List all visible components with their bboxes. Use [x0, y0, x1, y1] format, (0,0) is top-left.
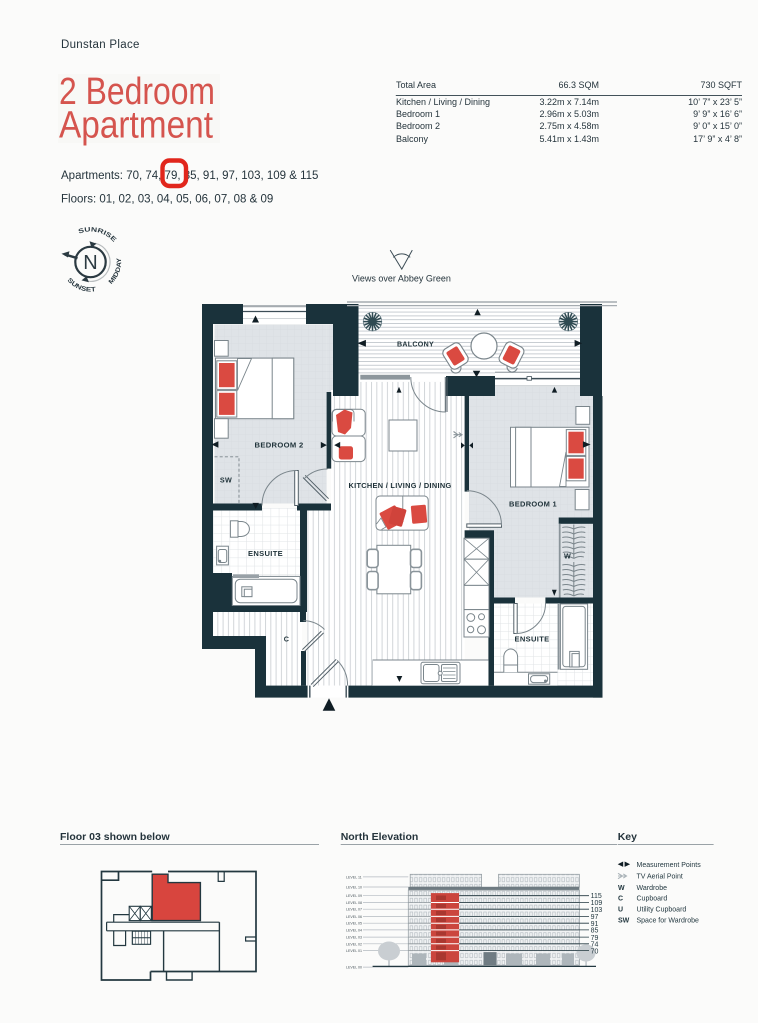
svg-text:Total Area: Total Area: [396, 80, 436, 90]
svg-text:SUNSET: SUNSET: [66, 277, 97, 294]
svg-text:LEVEL 04: LEVEL 04: [346, 928, 362, 932]
svg-text:5.41m x 1.43m: 5.41m x 1.43m: [539, 134, 599, 144]
svg-text:Apartment: Apartment: [59, 105, 213, 147]
svg-text:SUNRISE: SUNRISE: [78, 226, 119, 244]
svg-text:730 SQFT: 730 SQFT: [700, 80, 742, 90]
svg-text:66.3 SQM: 66.3 SQM: [558, 80, 599, 90]
svg-text:BEDROOM 1: BEDROOM 1: [509, 500, 557, 509]
svg-text:SW: SW: [618, 918, 630, 925]
svg-text:Wardrobe: Wardrobe: [637, 885, 668, 892]
svg-text:70: 70: [591, 948, 599, 955]
svg-text:2.75m x 4.58m: 2.75m x 4.58m: [539, 121, 599, 131]
svg-text:Key: Key: [618, 831, 637, 843]
svg-text:LEVEL 10: LEVEL 10: [346, 886, 362, 890]
svg-text:LEVEL 02: LEVEL 02: [346, 942, 362, 946]
svg-text:LEVEL 05: LEVEL 05: [346, 922, 362, 926]
svg-text:Utility Cupboard: Utility Cupboard: [637, 907, 687, 914]
svg-text:North Elevation: North Elevation: [341, 831, 419, 843]
svg-text:LEVEL 01: LEVEL 01: [346, 949, 362, 953]
svg-text:85: 85: [591, 928, 599, 935]
svg-text:LEVEL 00: LEVEL 00: [346, 966, 362, 970]
svg-text:9’ 0” x 15’ 0”: 9’ 0” x 15’ 0”: [693, 121, 742, 131]
svg-text:Measurement Points: Measurement Points: [637, 862, 702, 869]
svg-text:LEVEL 09: LEVEL 09: [346, 894, 362, 898]
svg-text:Bedroom 2: Bedroom 2: [396, 121, 440, 131]
svg-text:ENSUITE: ENSUITE: [515, 635, 550, 644]
svg-text:LEVEL 11: LEVEL 11: [346, 875, 362, 879]
svg-text:Dunstan Place: Dunstan Place: [61, 39, 140, 51]
svg-text:Floors: 01, 02, 03, 04, 05, 06: Floors: 01, 02, 03, 04, 05, 06, 07, 08 &…: [61, 194, 273, 206]
svg-text:Balcony: Balcony: [396, 134, 429, 144]
svg-text:Bedroom 1: Bedroom 1: [396, 109, 440, 119]
svg-text:BALCONY: BALCONY: [397, 340, 434, 349]
svg-text:KITCHEN / LIVING / DINING: KITCHEN / LIVING / DINING: [349, 481, 452, 490]
svg-text:Kitchen / Living / Dining: Kitchen / Living / Dining: [396, 97, 490, 107]
svg-text:N: N: [83, 252, 97, 274]
svg-text:ENSUITE: ENSUITE: [248, 549, 283, 558]
svg-text:C: C: [618, 896, 623, 903]
svg-text:LEVEL 03: LEVEL 03: [346, 936, 362, 940]
svg-text:BEDROOM 2: BEDROOM 2: [255, 441, 304, 450]
svg-text:C: C: [284, 635, 290, 644]
svg-text:U: U: [618, 907, 623, 914]
svg-text:3.22m x 7.14m: 3.22m x 7.14m: [539, 97, 599, 107]
svg-text:W: W: [564, 552, 571, 561]
svg-text:LEVEL 08: LEVEL 08: [346, 901, 362, 905]
svg-text:LEVEL 07: LEVEL 07: [346, 908, 362, 912]
svg-text:17’ 9” x 4’ 8”: 17’ 9” x 4’ 8”: [693, 134, 742, 144]
svg-text:9’ 9” x 16’ 6”: 9’ 9” x 16’ 6”: [693, 109, 742, 119]
svg-text:Floor 03 shown below: Floor 03 shown below: [60, 831, 171, 843]
svg-text:2.96m x 5.03m: 2.96m x 5.03m: [539, 109, 599, 119]
svg-text:Apartments: 70, 74, 79, 85, 91: Apartments: 70, 74, 79, 85, 91, 97, 103,…: [61, 170, 318, 182]
svg-text:103: 103: [591, 907, 603, 914]
svg-text:Cupboard: Cupboard: [637, 896, 668, 903]
svg-text:10’ 7” x 23’ 5”: 10’ 7” x 23’ 5”: [688, 97, 742, 107]
svg-text:TV Aerial Point: TV Aerial Point: [637, 873, 683, 880]
svg-text:W: W: [618, 885, 625, 892]
svg-text:Views over Abbey Green: Views over Abbey Green: [352, 274, 451, 284]
svg-text:Space for Wardrobe: Space for Wardrobe: [637, 918, 699, 925]
svg-text:LEVEL 06: LEVEL 06: [346, 915, 362, 919]
svg-text:SW: SW: [220, 476, 232, 485]
